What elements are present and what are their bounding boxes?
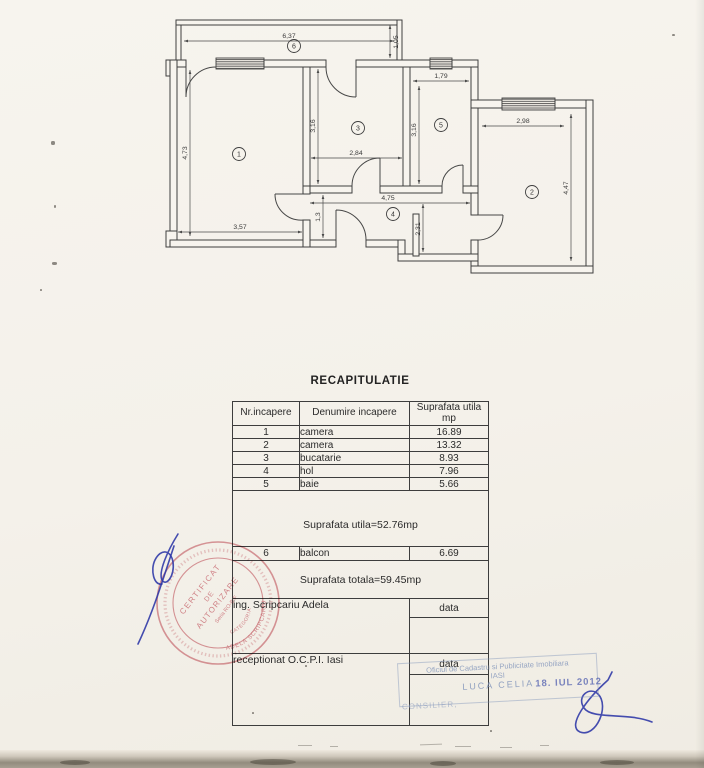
dim-vestibule-depth: 2,31 [415, 222, 422, 235]
row1-name: camera [300, 426, 410, 439]
scan-mark [420, 744, 442, 746]
dim-room3-height: 3,16 [310, 119, 317, 132]
row1-area: 16.89 [410, 426, 489, 439]
table-row: 2 camera 13.32 [233, 439, 489, 452]
row2-name: camera [300, 439, 410, 452]
dim-room5-height: 3,16 [411, 123, 418, 136]
dim-balcony-width: 6,37 [282, 33, 295, 40]
room2-number: 2 [530, 190, 534, 197]
dust-speck [252, 712, 254, 714]
dim-room2-height: 4,47 [563, 181, 570, 194]
office-stamp-date: 18. IUL 2012 [535, 677, 602, 688]
row2-area: 13.32 [410, 439, 489, 452]
dim-room3-width: 2,84 [349, 150, 362, 157]
table-row: 4 hol 7.96 [233, 465, 489, 478]
door-arcs [186, 67, 503, 240]
balcon-area: 6.69 [410, 547, 489, 561]
window-room1 [216, 58, 264, 69]
row5-name: baie [300, 478, 410, 491]
dim-room1-height: 4,73 [182, 146, 189, 159]
floor-plan-drawing: 6,37 1,05 4,73 3,57 3,16 2,84 1,79 3,16 … [160, 8, 600, 293]
scan-mark [298, 745, 312, 746]
row4-name: hol [300, 465, 410, 478]
row3-area: 8.93 [410, 452, 489, 465]
room4-number: 4 [391, 212, 395, 219]
engineer-date-cell [410, 618, 489, 654]
room6-number: 6 [292, 44, 296, 51]
dust-speck [490, 730, 492, 732]
dust-speck [51, 141, 55, 145]
row1-nr: 1 [233, 426, 300, 439]
scanned-cadastral-document: 6,37 1,05 4,73 3,57 3,16 2,84 1,79 3,16 … [0, 0, 704, 768]
dust-speck [52, 262, 57, 265]
row3-nr: 3 [233, 452, 300, 465]
dim-room2-width: 2,98 [516, 118, 529, 125]
window-room5 [430, 58, 452, 69]
dim-room5-width: 1,79 [434, 73, 447, 80]
scan-mark [455, 746, 471, 747]
dim-room1-width: 3,57 [233, 224, 246, 231]
room3-number: 3 [356, 126, 360, 133]
dust-speck [40, 289, 42, 291]
scan-mark [330, 746, 338, 747]
room1-number: 1 [237, 152, 241, 159]
header-suprafata-line1: Suprafata utila [410, 403, 488, 414]
dust-speck [305, 665, 307, 667]
dust-speck [54, 205, 56, 208]
scan-mark [500, 747, 512, 748]
window-room2 [502, 98, 555, 110]
interior-walls [303, 67, 478, 266]
paper-bottom-edge [0, 750, 704, 768]
balcon-name: balcon [300, 547, 410, 561]
balcony-walls [176, 20, 402, 60]
scan-mark [540, 745, 549, 746]
header-suprafata: Suprafata utila mp [410, 402, 489, 426]
table-row: 1 camera 16.89 [233, 426, 489, 439]
engineer-date-label: data [410, 599, 489, 618]
room5-number: 5 [439, 123, 443, 130]
dust-speck [672, 34, 675, 36]
row4-nr: 4 [233, 465, 300, 478]
header-suprafata-line2: mp [410, 414, 488, 425]
dim-balcony-depth: 1,05 [393, 35, 400, 48]
page-title: RECAPITULATIE [232, 375, 488, 387]
table-header-row: Nr.incapere Denumire incapere Suprafata … [233, 402, 489, 426]
header-nr: Nr.incapere [233, 402, 300, 426]
engineer-signature [128, 528, 198, 658]
exterior-top-wall [170, 58, 478, 69]
row5-area: 5.66 [410, 478, 489, 491]
dim-hall-depth: 1,3 [315, 212, 322, 222]
row4-area: 7.96 [410, 465, 489, 478]
row3-name: bucatarie [300, 452, 410, 465]
table-row: 3 bucatarie 8.93 [233, 452, 489, 465]
row5-nr: 5 [233, 478, 300, 491]
header-denumire: Denumire incapere [300, 402, 410, 426]
row2-nr: 2 [233, 439, 300, 452]
table-row: 5 baie 5.66 [233, 478, 489, 491]
scan-edge-shadow [695, 0, 704, 768]
dim-hall-width: 4,75 [381, 195, 394, 202]
